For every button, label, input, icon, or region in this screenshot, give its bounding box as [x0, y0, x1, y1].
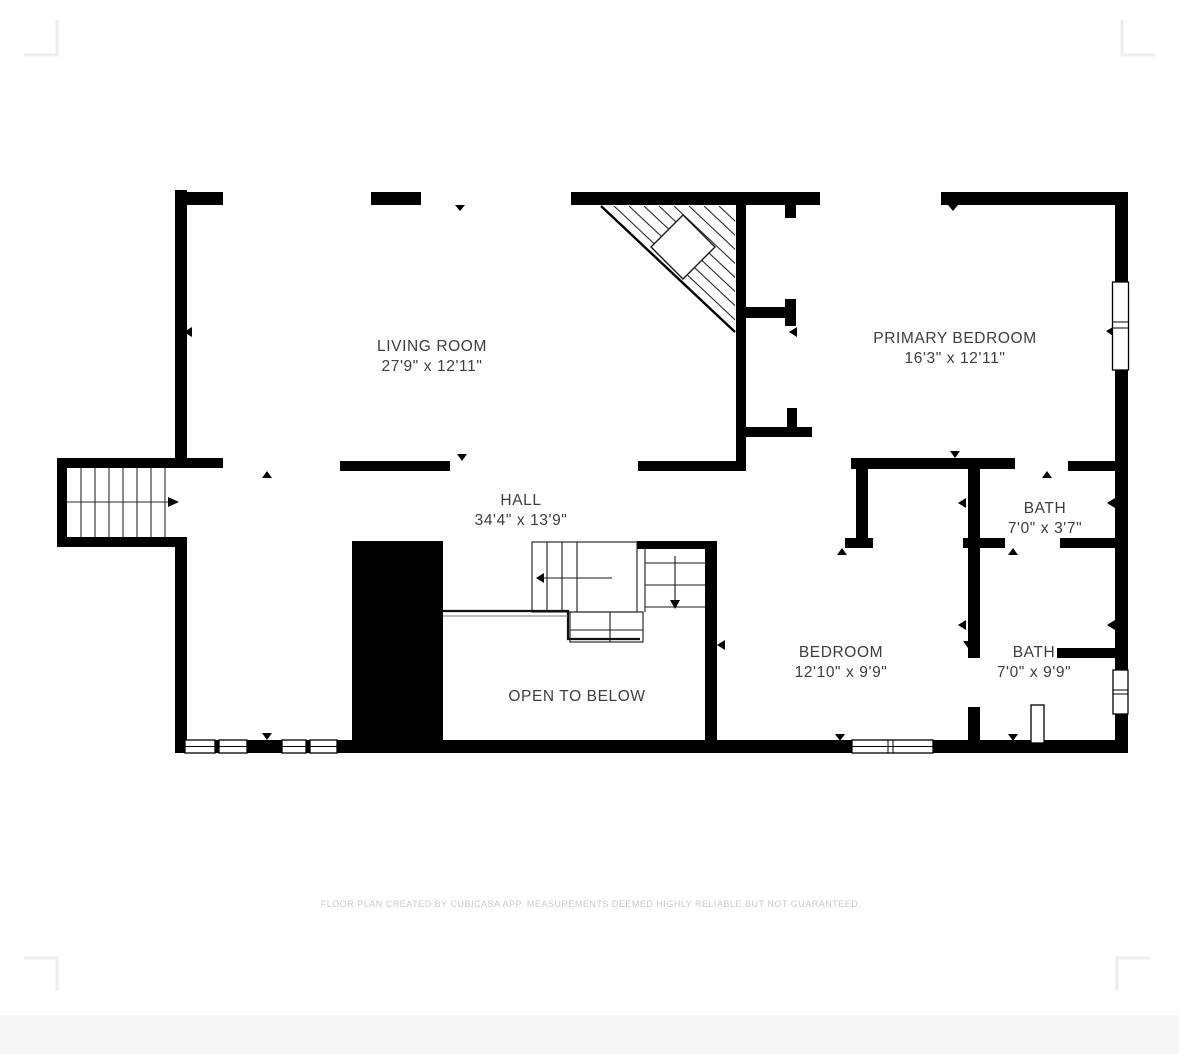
room-label-bath-small: BATH 7'0" x 3'7" — [1008, 500, 1082, 537]
disclaimer-text: FLOOR PLAN CREATED BY CUBICASA APP. MEAS… — [321, 899, 861, 909]
room-label-hall: HALL 34'4" x 13'9" — [475, 492, 568, 529]
room-label-bedroom: BEDROOM 12'10" x 9'9" — [795, 644, 888, 681]
room-name: LIVING ROOM — [377, 338, 487, 355]
room-dimensions: 16'3" x 12'11" — [905, 350, 1006, 367]
room-dimensions: 27'9" x 12'11" — [382, 358, 483, 375]
floor-plan-drawing: LIVING ROOM 27'9" x 12'11" PRIMARY BEDRO… — [0, 0, 1179, 1054]
stair-direction-arrow — [168, 497, 179, 507]
room-label-open-to-below: OPEN TO BELOW — [508, 688, 645, 705]
stairs-middle — [532, 542, 705, 642]
room-name: HALL — [500, 492, 541, 509]
crop-mark-top-right — [1122, 20, 1155, 55]
room-label-primary-bedroom: PRIMARY BEDROOM 16'3" x 12'11" — [873, 330, 1036, 367]
window-primary-bedroom — [1113, 282, 1129, 370]
room-dimensions: 7'0" x 9'9" — [997, 664, 1071, 681]
walls — [57, 190, 1128, 753]
window-bath — [1113, 670, 1128, 714]
room-label-living-room: LIVING ROOM 27'9" x 12'11" — [377, 338, 487, 375]
crop-marks — [24, 20, 1155, 991]
window — [310, 740, 337, 753]
floor-plan-page: LIVING ROOM 27'9" x 12'11" PRIMARY BEDRO… — [0, 0, 1179, 1054]
chimney-block — [352, 541, 443, 753]
window — [185, 740, 215, 753]
stair-landing-diamond — [651, 215, 715, 279]
window — [282, 740, 306, 753]
bottom-band — [0, 1015, 1179, 1054]
window — [219, 740, 247, 753]
room-name: PRIMARY BEDROOM — [873, 330, 1036, 347]
crop-mark-bottom-left — [24, 958, 57, 991]
room-name: BATH — [1013, 644, 1056, 661]
window — [852, 740, 933, 753]
room-name: BATH — [1024, 500, 1067, 517]
room-dimensions: 7'0" x 3'7" — [1008, 520, 1082, 537]
stairs-winder — [601, 206, 869, 347]
stair-arrow-left — [536, 573, 544, 583]
crop-mark-bottom-right — [1117, 958, 1150, 991]
stair-arrow-down — [670, 600, 680, 609]
room-name: BEDROOM — [799, 644, 883, 661]
stairs-left — [67, 468, 179, 537]
crop-mark-top-left — [24, 20, 57, 55]
room-dimensions: 34'4" x 13'9" — [475, 512, 568, 529]
door-leaf — [1031, 705, 1044, 743]
room-dimensions: 12'10" x 9'9" — [795, 664, 888, 681]
